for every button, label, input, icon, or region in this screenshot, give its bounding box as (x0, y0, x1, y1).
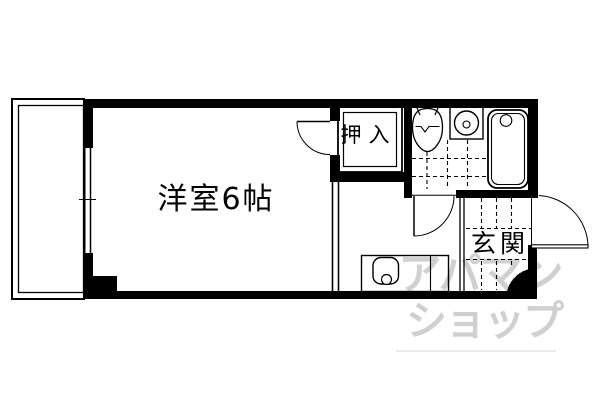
watermark-line2: ショップ (406, 297, 558, 345)
balcony (12, 99, 84, 299)
toilet-bowl (413, 109, 443, 152)
bathtub-symbol (488, 110, 528, 188)
bathtub-inner (492, 114, 525, 185)
wall-bath-bottom-left (404, 190, 412, 198)
bathroom-swing-door (412, 195, 456, 236)
balcony-inner-line (19, 106, 84, 293)
sliding-window (79, 148, 96, 253)
wall-closet-bottom (330, 172, 412, 182)
room-swing-door (297, 122, 330, 155)
bathtub-faucet (500, 115, 512, 127)
wall-bath-left (404, 99, 412, 198)
floorplan-canvas: 洋室6帖 押入 玄関 アパマン ショップ (0, 0, 600, 400)
wall-bath-bottom-right (456, 190, 538, 198)
balcony-outer-line (12, 99, 84, 299)
washbasin-bowl (455, 111, 479, 135)
hall-partition-wall (333, 182, 339, 291)
bathtub-outer (488, 110, 528, 188)
door-leaf (532, 245, 589, 248)
toilet-water-line (416, 127, 440, 133)
washbasin-symbol (450, 107, 483, 139)
entrance-swing-door (532, 195, 589, 248)
door-swing-arc (297, 122, 330, 155)
bathroom (412, 103, 528, 236)
closet-label: 押入 (334, 123, 403, 148)
washbasin-drain (463, 121, 470, 128)
kitchen-faucet (382, 275, 392, 285)
watermark-underline (396, 350, 556, 352)
bath-tile-dashed-grid (412, 140, 488, 189)
toilet-symbol (413, 103, 443, 152)
watermark-line1: アパマン (398, 250, 562, 300)
door-swing-arc (414, 196, 454, 236)
door-swing-arc (539, 196, 588, 246)
room-label: 洋室6帖 (138, 183, 294, 217)
wall-bath-right (528, 99, 538, 195)
wall-pillar-bottom-left (83, 276, 117, 292)
